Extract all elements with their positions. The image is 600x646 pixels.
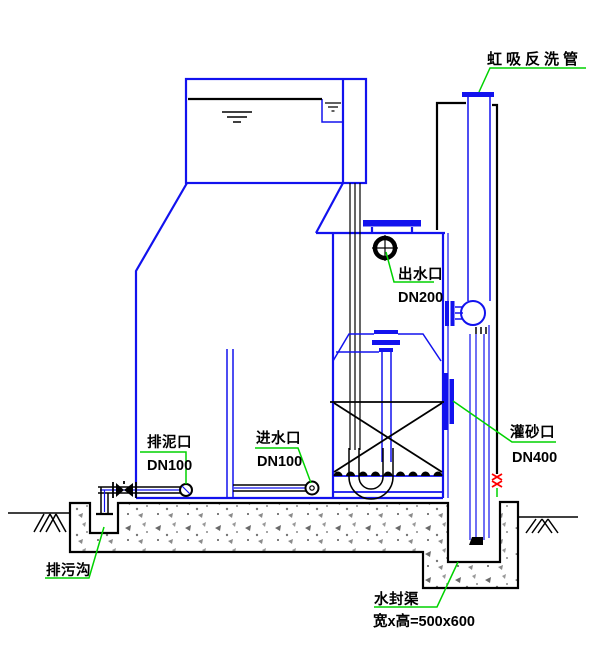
label-sludge-port: 排泥口 [147,433,192,451]
label-inlet: 进水口 [256,429,301,447]
label-inlet-dn: DN100 [257,454,302,470]
diagram-canvas: 虹吸反洗管 出水口 DN200 排泥口 DN100 进水口 DN100 灌砂口 … [0,0,600,646]
drawing-sheet: 虹吸反洗管 出水口 DN200 排泥口 DN100 进水口 DN100 灌砂口 … [0,0,600,646]
label-sand-dn: DN400 [512,450,557,466]
label-water-seal-dim: 宽x高=500x600 [372,612,475,630]
label-water-seal: 水封渠 [374,590,419,608]
inlet-port-flange [306,482,319,495]
label-outlet-dn: DN200 [398,290,443,306]
pipe-top-flange [462,92,494,97]
label-drain-ditch: 排污沟 [46,561,91,579]
label-outlet: 出水口 [398,265,443,283]
label-sand-port: 灌砂口 [510,423,555,441]
top-flange-plate [363,220,421,227]
label-sludge-dn: DN100 [147,458,192,474]
label-siphon-backwash: 虹吸反洗管 [487,50,582,68]
